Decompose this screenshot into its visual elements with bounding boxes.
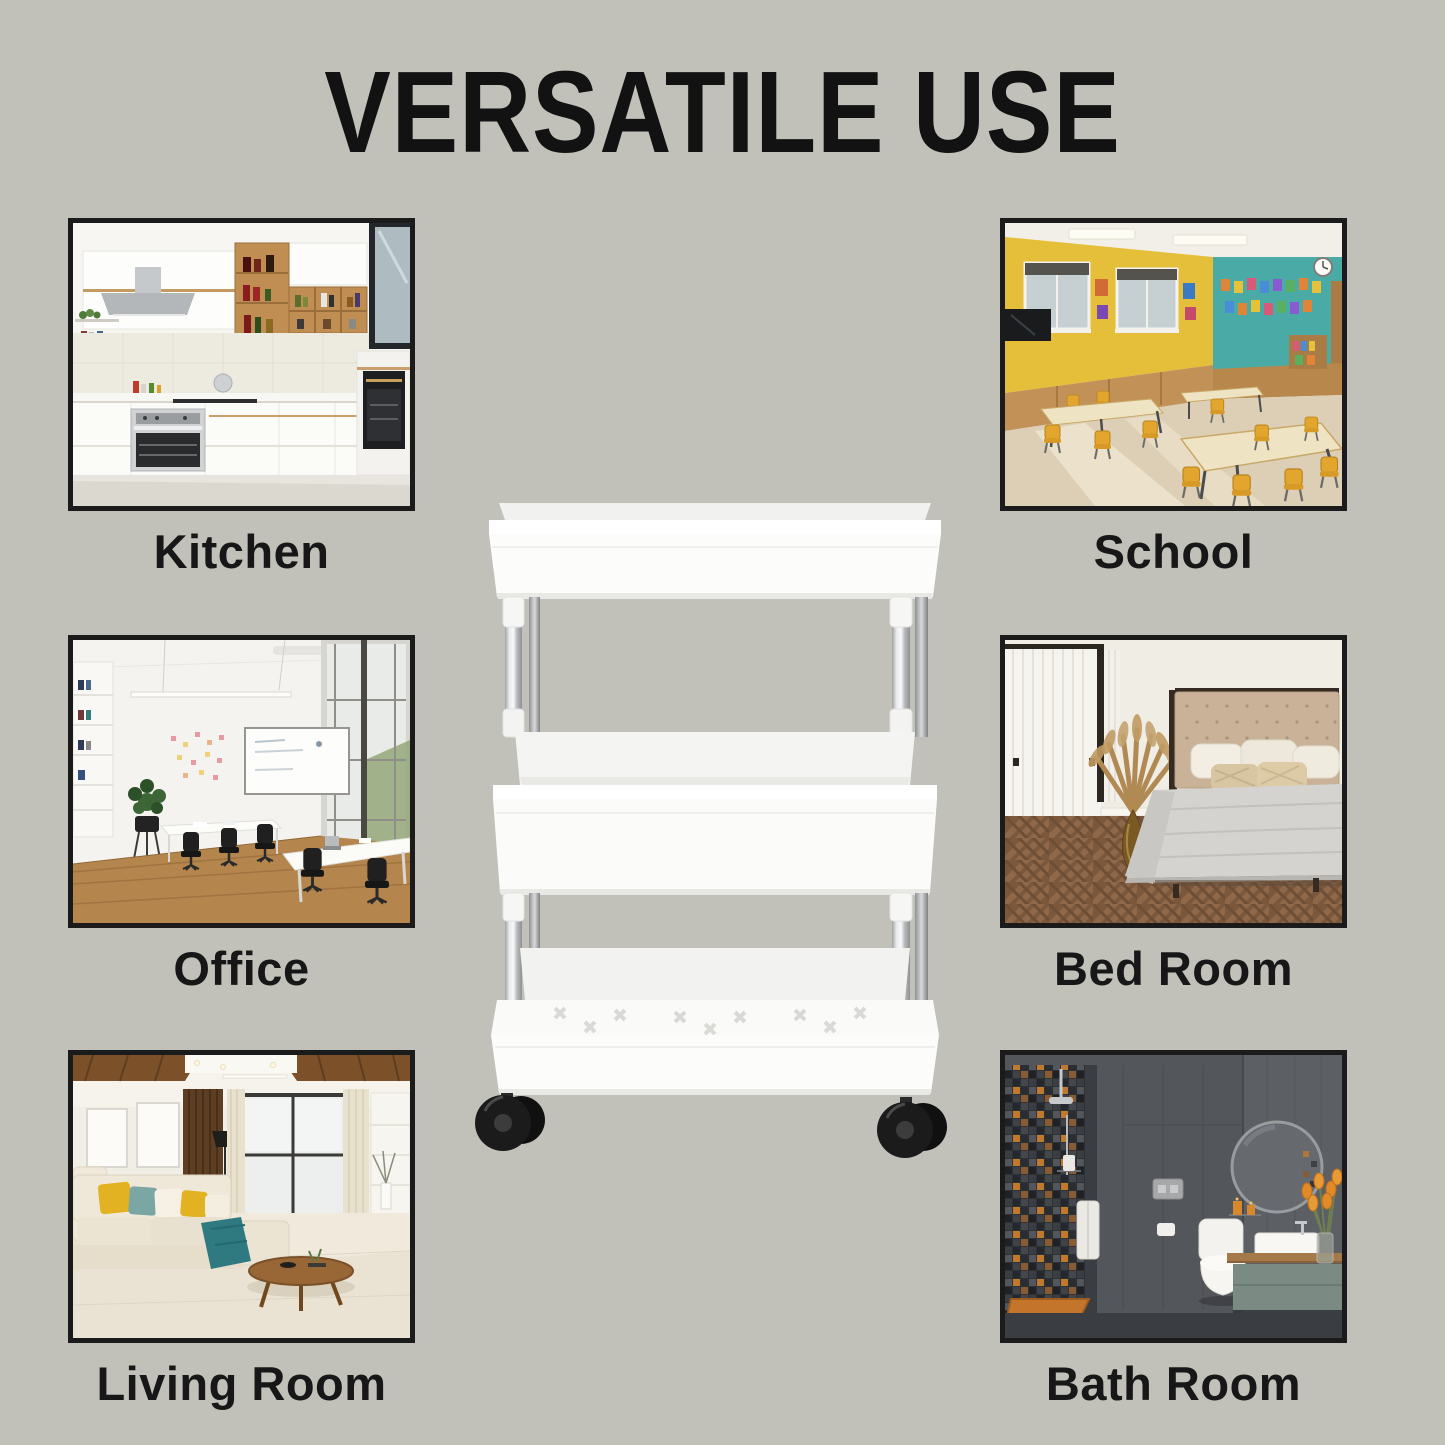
- bedroom-window-curtains: [1005, 644, 1120, 818]
- bed-room-label: Bed Room: [1000, 941, 1347, 996]
- kitchen-window: [369, 223, 410, 349]
- school-photo: [1000, 218, 1347, 511]
- school-tv: [1005, 309, 1051, 341]
- kitchen-wood-shelf-box: [235, 243, 289, 335]
- card-bed-room: Bed Room: [1000, 635, 1347, 996]
- card-bath-room: Bath Room: [1000, 1050, 1347, 1411]
- bath-room-photo-illustration: [1005, 1055, 1342, 1338]
- office-bookshelf: [73, 662, 113, 837]
- cart-caster-wheels: [475, 1093, 947, 1158]
- kitchen-lower-cabinets: [73, 403, 369, 475]
- office-photo-illustration: [73, 640, 410, 923]
- kitchen-builtin-oven: [131, 409, 205, 471]
- cart-middle-basket: [493, 732, 937, 895]
- card-living-room: Living Room: [68, 1050, 415, 1411]
- bed-room-photo-illustration: [1005, 640, 1342, 923]
- bed-room-photo: [1000, 635, 1347, 928]
- kitchen-photo: [68, 218, 415, 511]
- living-room-photo-illustration: [73, 1055, 410, 1338]
- bath-room-photo: [1000, 1050, 1347, 1343]
- living-frame-2: [137, 1103, 179, 1167]
- rolling-cart-illustration: [455, 475, 970, 1180]
- office-label: Office: [68, 941, 415, 996]
- card-office: Office: [68, 635, 415, 996]
- bath-room-label: Bath Room: [1000, 1356, 1347, 1411]
- cart-top-basket: [489, 503, 941, 599]
- cart-upper-poles: [503, 597, 928, 737]
- school-photo-illustration: [1005, 223, 1342, 506]
- card-school: School: [1000, 218, 1347, 579]
- living-window: [241, 1095, 345, 1215]
- office-photo: [68, 635, 415, 928]
- kitchen-label: Kitchen: [68, 524, 415, 579]
- kitchen-tall-oven-unit: [357, 351, 410, 475]
- office-whiteboard: [245, 728, 349, 794]
- kitchen-wood-cubby: [289, 287, 367, 333]
- living-shelves: [371, 1093, 410, 1215]
- living-frame-1: [87, 1109, 127, 1167]
- school-label: School: [1000, 524, 1347, 579]
- bathroom-mosaic-shower: [1005, 1065, 1099, 1325]
- cart-bottom-basket: [491, 948, 939, 1095]
- product-image-rolling-cart: [455, 475, 970, 1180]
- living-room-label: Living Room: [68, 1356, 415, 1411]
- living-room-photo: [68, 1050, 415, 1343]
- card-kitchen: Kitchen: [68, 218, 415, 579]
- kitchen-photo-illustration: [73, 223, 410, 506]
- bathroom-floor: [1005, 1313, 1342, 1338]
- page-title: VERSATILE USE: [101, 54, 1344, 170]
